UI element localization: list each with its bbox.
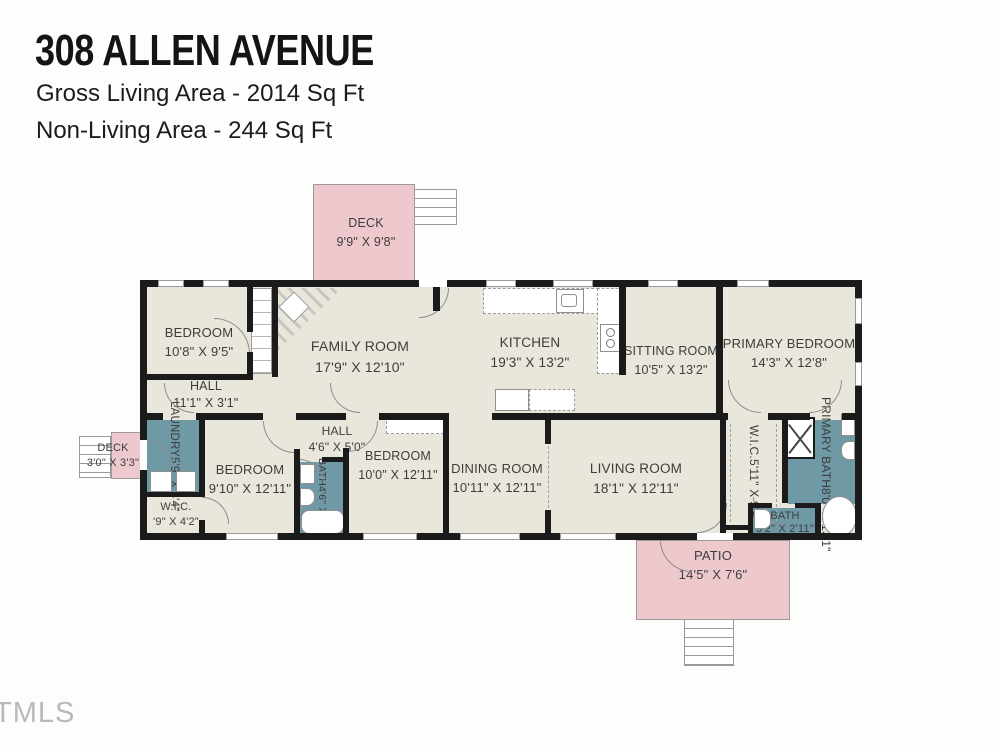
window (158, 280, 184, 287)
room-kitchen: KITCHEN 19'3" X 13'2" (460, 328, 600, 378)
stove-burner (606, 328, 615, 337)
room-wic-left: W.I.C. '9" X 4'2" (147, 499, 205, 530)
wall (492, 413, 728, 420)
wall (433, 287, 440, 311)
patio-stairs (684, 619, 734, 666)
wall (199, 520, 205, 533)
wall (294, 449, 300, 533)
non-living-area: Non-Living Area - 244 Sq Ft (36, 117, 332, 145)
toilet-fixture (841, 441, 855, 460)
wall (815, 503, 821, 533)
floor-plan: 308 ALLEN AVENUE Gross Living Area - 201… (0, 0, 1000, 750)
room-dims: 9'9" X 9'8" (337, 233, 396, 252)
room-name: DECK (97, 441, 128, 456)
window (553, 280, 593, 287)
window (203, 280, 229, 287)
wall (842, 413, 855, 420)
room-name: DECK (348, 214, 384, 233)
room-deck-top: DECK 9'9" X 9'8" (318, 206, 414, 260)
stove-burner (606, 339, 615, 348)
window (855, 298, 862, 324)
wall (147, 413, 163, 420)
room-name: LIVING ROOM (590, 459, 682, 479)
gross-living-area: Gross Living Area - 2014 Sq Ft (36, 80, 364, 108)
wall (748, 503, 753, 533)
room-primary-bedroom: PRIMARY BEDROOM 14'3" X 12'8" (726, 328, 852, 378)
tmls-watermark: TMLS (0, 697, 75, 730)
window (648, 280, 678, 287)
shower-fixture (785, 417, 815, 459)
wall (768, 413, 810, 420)
sink-basin (561, 294, 577, 307)
window (737, 280, 769, 287)
window (460, 533, 520, 540)
wall (140, 280, 147, 540)
room-family-room: FAMILY ROOM 17'9" X 12'10" (288, 332, 432, 382)
wall (272, 287, 278, 377)
wall (247, 352, 253, 380)
wall (343, 448, 349, 533)
room-deck-left: DECK 3'0" X 3'3" (76, 438, 150, 474)
cased-opening-line (548, 446, 549, 508)
room-name: W.I.C. (746, 425, 762, 459)
page-title: 308 ALLEN AVENUE (35, 26, 374, 76)
room-name: W.I.C. (160, 500, 191, 514)
wall (782, 420, 788, 503)
room-dining-room: DINING ROOM 10'11" X 12'11" (447, 456, 547, 500)
room-dims: 10'11" X 12'11" (453, 478, 542, 498)
room-name: PATIO (694, 546, 732, 566)
wall (196, 413, 263, 420)
wall (296, 413, 346, 420)
wall (545, 420, 551, 444)
room-name: HALL (190, 378, 222, 394)
wall (545, 510, 551, 533)
room-bedroom-bottom-mid: BEDROOM 10'0" X 12'11" (352, 444, 444, 488)
room-name: SITTING ROOM (624, 342, 718, 361)
deck-top-stairs (414, 189, 457, 225)
wall (147, 492, 205, 497)
window (855, 362, 862, 386)
washer (150, 471, 172, 492)
kitchen-island (495, 389, 529, 411)
room-dims: 10'5" X 13'2" (634, 361, 707, 380)
patio-door-opening (697, 533, 733, 540)
window (486, 280, 516, 287)
kitchen-island-counter (529, 389, 575, 411)
room-sitting-room: SITTING ROOM 10'5" X 13'2" (623, 335, 719, 387)
room-dims: 10'0" X 12'11" (358, 466, 437, 485)
soaking-tub-fixture (822, 496, 857, 537)
dryer (176, 471, 196, 492)
wall (147, 374, 247, 380)
wall (199, 420, 205, 495)
room-dims: '9" X 4'2" (153, 515, 199, 529)
room-dims: 9'10" X 12'11" (209, 479, 292, 499)
room-dims: 3'0" X 3'3" (87, 456, 139, 471)
toilet-fixture (300, 488, 315, 506)
room-dims: 17'9" X 12'10" (315, 357, 405, 378)
bath-sink (300, 464, 315, 484)
wall (716, 287, 723, 413)
room-name: FAMILY ROOM (311, 336, 409, 357)
wall (720, 420, 726, 533)
room-name: PRIMARY BEDROOM (723, 334, 856, 354)
room-living-room: LIVING ROOM 18'1" X 12'11" (570, 456, 702, 502)
wall (619, 287, 626, 375)
room-name: DINING ROOM (451, 459, 543, 479)
room-dims: 18'1" X 12'11" (593, 479, 679, 499)
room-bedroom-bottom-left: BEDROOM 9'10" X 12'11" (200, 456, 300, 502)
wall (379, 413, 449, 420)
room-name: BEDROOM (365, 447, 431, 466)
toilet-fixture (754, 509, 771, 529)
closet-shelves (251, 288, 272, 374)
window (560, 533, 616, 540)
wall (247, 287, 253, 332)
deck-door-opening (419, 280, 447, 287)
wall (443, 420, 449, 533)
room-name: KITCHEN (500, 333, 561, 353)
room-dims: 19'3" X 13'2" (491, 353, 570, 373)
window (226, 533, 278, 540)
room-name: BEDROOM (216, 460, 285, 480)
room-dims: 14'3" X 12'8" (751, 353, 827, 373)
bathtub-fixture (301, 510, 344, 534)
window (363, 533, 417, 540)
